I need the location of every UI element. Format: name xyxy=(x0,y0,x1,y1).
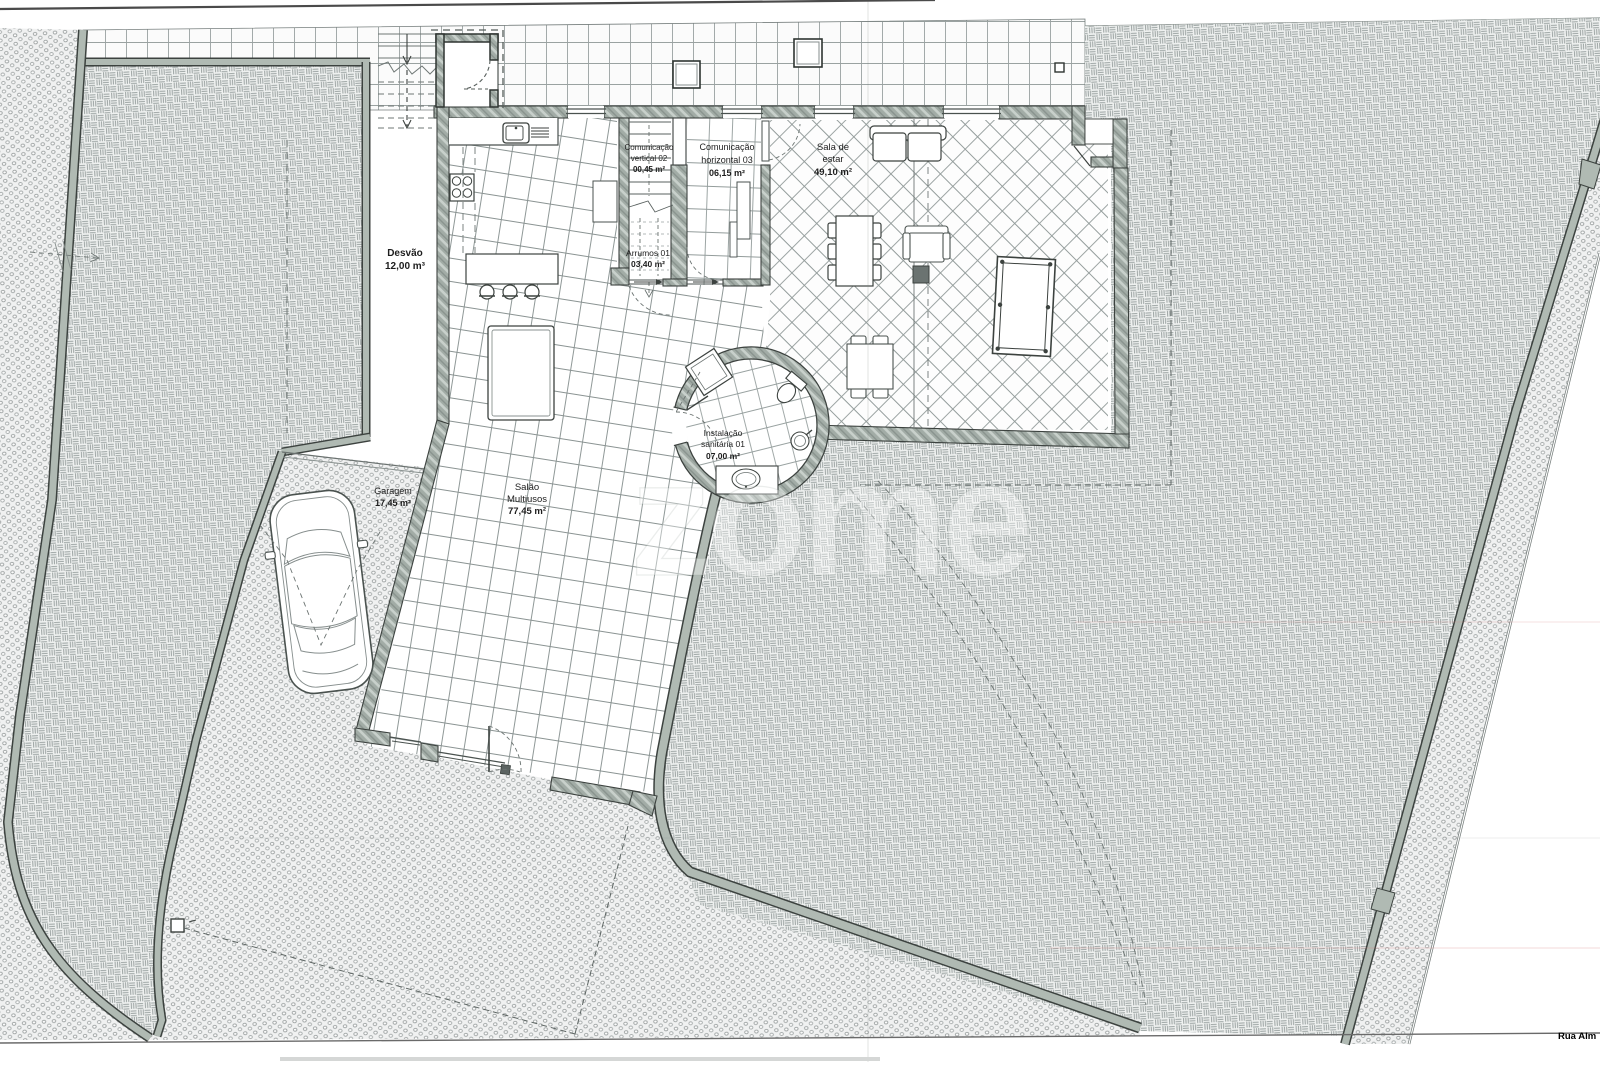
svg-text:Garagem: Garagem xyxy=(374,486,412,496)
svg-text:Rua Alm: Rua Alm xyxy=(1558,1031,1596,1042)
svg-text:03,40 m²: 03,40 m² xyxy=(631,259,665,269)
svg-text:17,45 m²: 17,45 m² xyxy=(375,498,411,508)
svg-text:Desvão: Desvão xyxy=(387,248,423,259)
svg-text:zome: zome xyxy=(630,426,1029,610)
svg-text:Sala de: Sala de xyxy=(817,142,849,153)
svg-text:Multiusos: Multiusos xyxy=(507,494,547,505)
svg-text:estar: estar xyxy=(822,154,843,165)
svg-text:Comunicação: Comunicação xyxy=(625,143,674,152)
svg-text:06,15 m²: 06,15 m² xyxy=(709,168,745,178)
svg-text:Salão: Salão xyxy=(515,482,539,493)
svg-text:vertical 02: vertical 02 xyxy=(631,154,668,163)
svg-text:49,10 m²: 49,10 m² xyxy=(814,167,852,178)
svg-text:12,00 m³: 12,00 m³ xyxy=(385,261,426,272)
svg-text:00,45 m²: 00,45 m² xyxy=(633,165,665,174)
svg-text:horizontal 03: horizontal 03 xyxy=(701,155,753,165)
svg-text:Comunicação: Comunicação xyxy=(699,142,754,152)
svg-text:Arrumos 01: Arrumos 01 xyxy=(626,248,670,258)
svg-text:77,45 m²: 77,45 m² xyxy=(508,506,546,517)
